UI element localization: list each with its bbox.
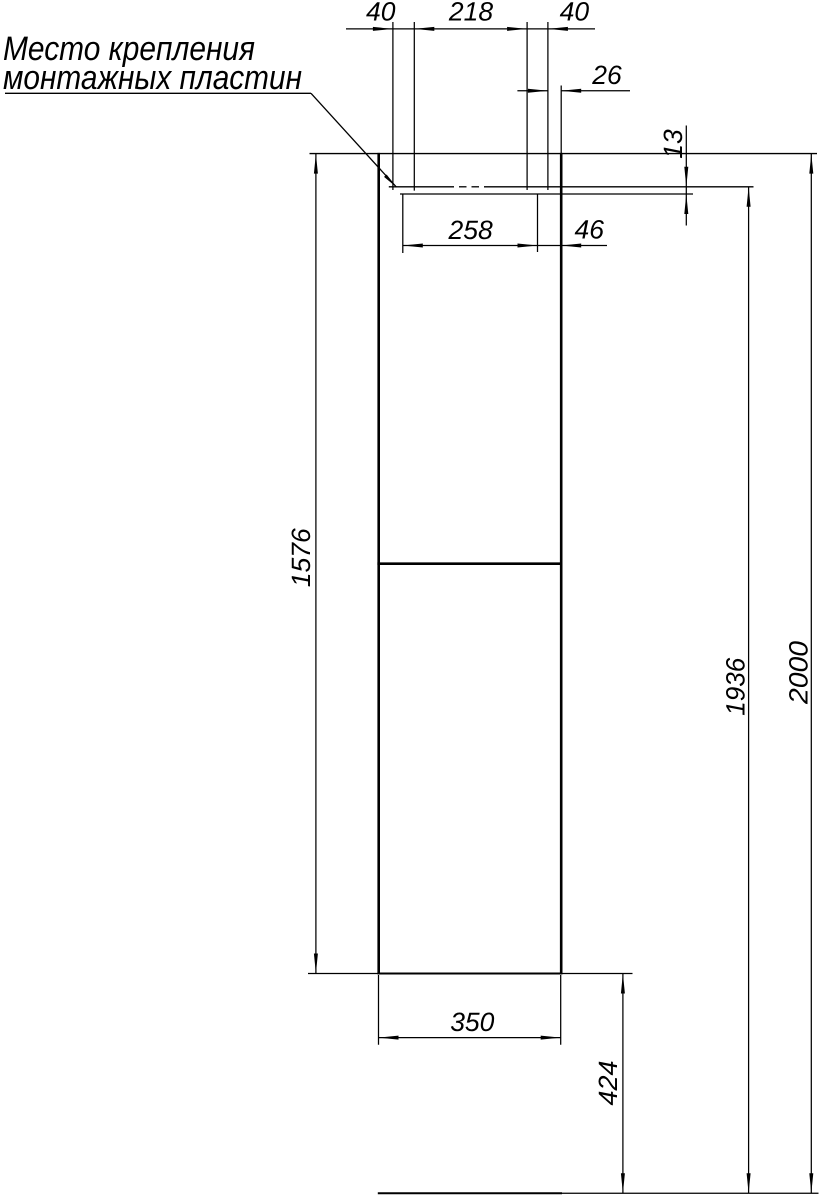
- svg-text:40: 40: [366, 0, 396, 27]
- svg-text:40: 40: [560, 0, 590, 27]
- svg-text:46: 46: [575, 215, 605, 245]
- svg-text:2000: 2000: [784, 641, 814, 705]
- svg-text:13: 13: [658, 129, 688, 159]
- svg-text:26: 26: [591, 60, 622, 90]
- svg-text:258: 258: [447, 215, 492, 245]
- svg-text:монтажных пластин: монтажных пластин: [3, 59, 302, 97]
- svg-text:424: 424: [593, 1061, 623, 1106]
- svg-text:1936: 1936: [721, 657, 751, 715]
- svg-text:350: 350: [450, 1007, 494, 1037]
- svg-text:1576: 1576: [286, 528, 316, 587]
- svg-text:218: 218: [448, 0, 493, 27]
